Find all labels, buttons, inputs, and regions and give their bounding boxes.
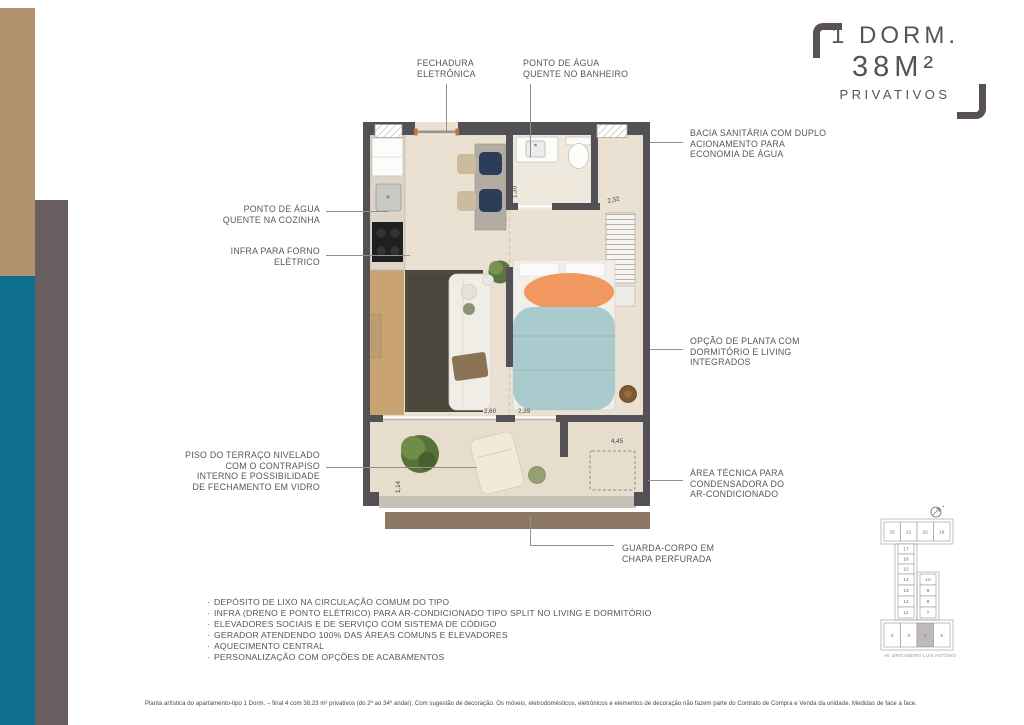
guard-rail-band bbox=[385, 512, 650, 529]
leader-line bbox=[650, 349, 683, 350]
accent-bar-teal bbox=[0, 276, 35, 725]
callout-piso-terraco: PISO DO TERRAÇO NIVELADO COM O CONTRAPIS… bbox=[185, 450, 320, 492]
svg-text:13: 13 bbox=[903, 588, 909, 594]
leader-line bbox=[650, 142, 683, 143]
svg-text:22: 22 bbox=[923, 530, 929, 536]
svg-text:12: 12 bbox=[903, 599, 909, 605]
chair bbox=[457, 154, 476, 174]
title-area: 38M² bbox=[806, 51, 984, 84]
console bbox=[372, 314, 381, 358]
svg-text:16: 16 bbox=[903, 557, 909, 563]
kitchen-area bbox=[370, 135, 405, 270]
callout-agua-quente-cozinha: PONTO DE ÁGUA QUENTE NA COZINHA bbox=[190, 204, 320, 225]
svg-text:15: 15 bbox=[903, 567, 909, 573]
feature-item: PERSONALIZAÇÃO COM OPÇÕES DE ACABAMENTOS bbox=[207, 652, 652, 663]
accent-bar-gray bbox=[35, 200, 68, 725]
svg-text:4: 4 bbox=[924, 633, 927, 639]
leader-line bbox=[326, 211, 388, 212]
callout-area-tecnica: ÁREA TÉCNICA PARA CONDENSADORA DO AR-CON… bbox=[690, 468, 784, 500]
entrance-door bbox=[417, 131, 456, 134]
svg-text:8: 8 bbox=[927, 599, 930, 605]
dimension-label: 2,60 bbox=[484, 408, 497, 415]
callout-fechadura-eletronica: FECHADURA ELETRÔNICA bbox=[417, 58, 476, 79]
dimension-label: 4,45 bbox=[611, 438, 624, 445]
dimension-label: 1,14 bbox=[395, 480, 402, 493]
disclaimer-text: Planta artística do apartamento-tipo 1 D… bbox=[145, 701, 917, 707]
accent-bar-tan bbox=[0, 8, 35, 276]
leader-line bbox=[446, 84, 447, 132]
floor-plan-illustration: 6,34 1,30 2,32 2,60 2,39 4,45 1,14 bbox=[363, 122, 650, 530]
callout-opcao-planta: OPÇÃO DE PLANTA COM DORMITÓRIO E LIVING … bbox=[690, 336, 800, 368]
svg-text:14: 14 bbox=[903, 577, 909, 583]
leader-line bbox=[530, 545, 614, 546]
svg-text:17: 17 bbox=[903, 547, 909, 553]
leader-line bbox=[326, 255, 410, 256]
sofa-pillow bbox=[462, 285, 477, 300]
terrace-edge bbox=[379, 496, 636, 508]
svg-text:21: 21 bbox=[906, 530, 912, 536]
north-arrow-icon bbox=[931, 506, 944, 517]
feature-item: INFRA (DRENO E PONTO ELÉTRICO) PARA AR-C… bbox=[207, 608, 652, 619]
svg-text:20: 20 bbox=[890, 530, 896, 536]
svg-text:3: 3 bbox=[907, 633, 910, 639]
feature-item: GERADOR ATENDENDO 100% DAS ÁREAS COMUNS … bbox=[207, 630, 652, 641]
callout-bacia-sanitaria: BACIA SANITÁRIA COM DUPLO ACIONAMENTO PA… bbox=[690, 128, 826, 160]
title-dorm: 1 DORM. bbox=[806, 22, 984, 50]
vase bbox=[483, 275, 494, 286]
svg-text:7: 7 bbox=[927, 610, 930, 616]
side-table bbox=[529, 467, 546, 484]
svg-text:10: 10 bbox=[925, 577, 931, 583]
svg-text:2: 2 bbox=[891, 633, 894, 639]
leader-line bbox=[648, 480, 683, 481]
chair bbox=[457, 191, 476, 211]
callout-agua-quente-banheiro: PONTO DE ÁGUA QUENTE NO BANHEIRO bbox=[523, 58, 628, 79]
callout-infra-forno: INFRA PARA FORNO ELÉTRICO bbox=[190, 246, 320, 267]
leader-line bbox=[326, 467, 477, 468]
svg-text:9: 9 bbox=[927, 588, 930, 594]
dimension-label: 2,39 bbox=[518, 408, 531, 415]
leader-line bbox=[530, 516, 531, 545]
brochure-page: { "accents": { "tan_bar": "#b2926e", "te… bbox=[0, 0, 1024, 725]
feature-item: DEPÓSITO DE LIXO NA CIRCULAÇÃO COMUM DO … bbox=[207, 597, 652, 608]
sofa-pillow bbox=[463, 303, 475, 315]
leader-line bbox=[530, 84, 531, 157]
svg-text:11: 11 bbox=[904, 610, 909, 616]
plan-title: 1 DORM. 38M² PRIVATIVOS bbox=[806, 22, 984, 102]
dimension-label: 6,34 bbox=[497, 155, 504, 168]
bed-blanket-orange bbox=[524, 273, 614, 311]
pillow bbox=[519, 263, 559, 276]
dimension-label: 1,30 bbox=[512, 185, 519, 198]
chair bbox=[479, 189, 502, 212]
svg-text:5: 5 bbox=[940, 633, 943, 639]
callout-guarda-corpo: GUARDA-CORPO EM CHAPA PERFURADA bbox=[622, 543, 714, 564]
feature-list: DEPÓSITO DE LIXO NA CIRCULAÇÃO COMUM DO … bbox=[207, 597, 652, 664]
cooktop bbox=[372, 222, 403, 262]
bed-throw-teal bbox=[513, 307, 615, 410]
sofa-throw bbox=[451, 352, 488, 381]
keyplan: 20 21 22 19 17 16 15 14 13 12 11 10 9 8 … bbox=[878, 502, 1014, 660]
feature-item: AQUECIMENTO CENTRAL bbox=[207, 641, 652, 652]
keyplan-street-label: AV. BRIGADEIRO LUIS ANTÔNIO bbox=[884, 653, 957, 658]
title-privativos: PRIVATIVOS bbox=[806, 87, 984, 102]
feature-item: ELEVADORES SOCIAIS E DE SERVIÇO COM SIST… bbox=[207, 619, 652, 630]
svg-text:19: 19 bbox=[939, 530, 945, 536]
